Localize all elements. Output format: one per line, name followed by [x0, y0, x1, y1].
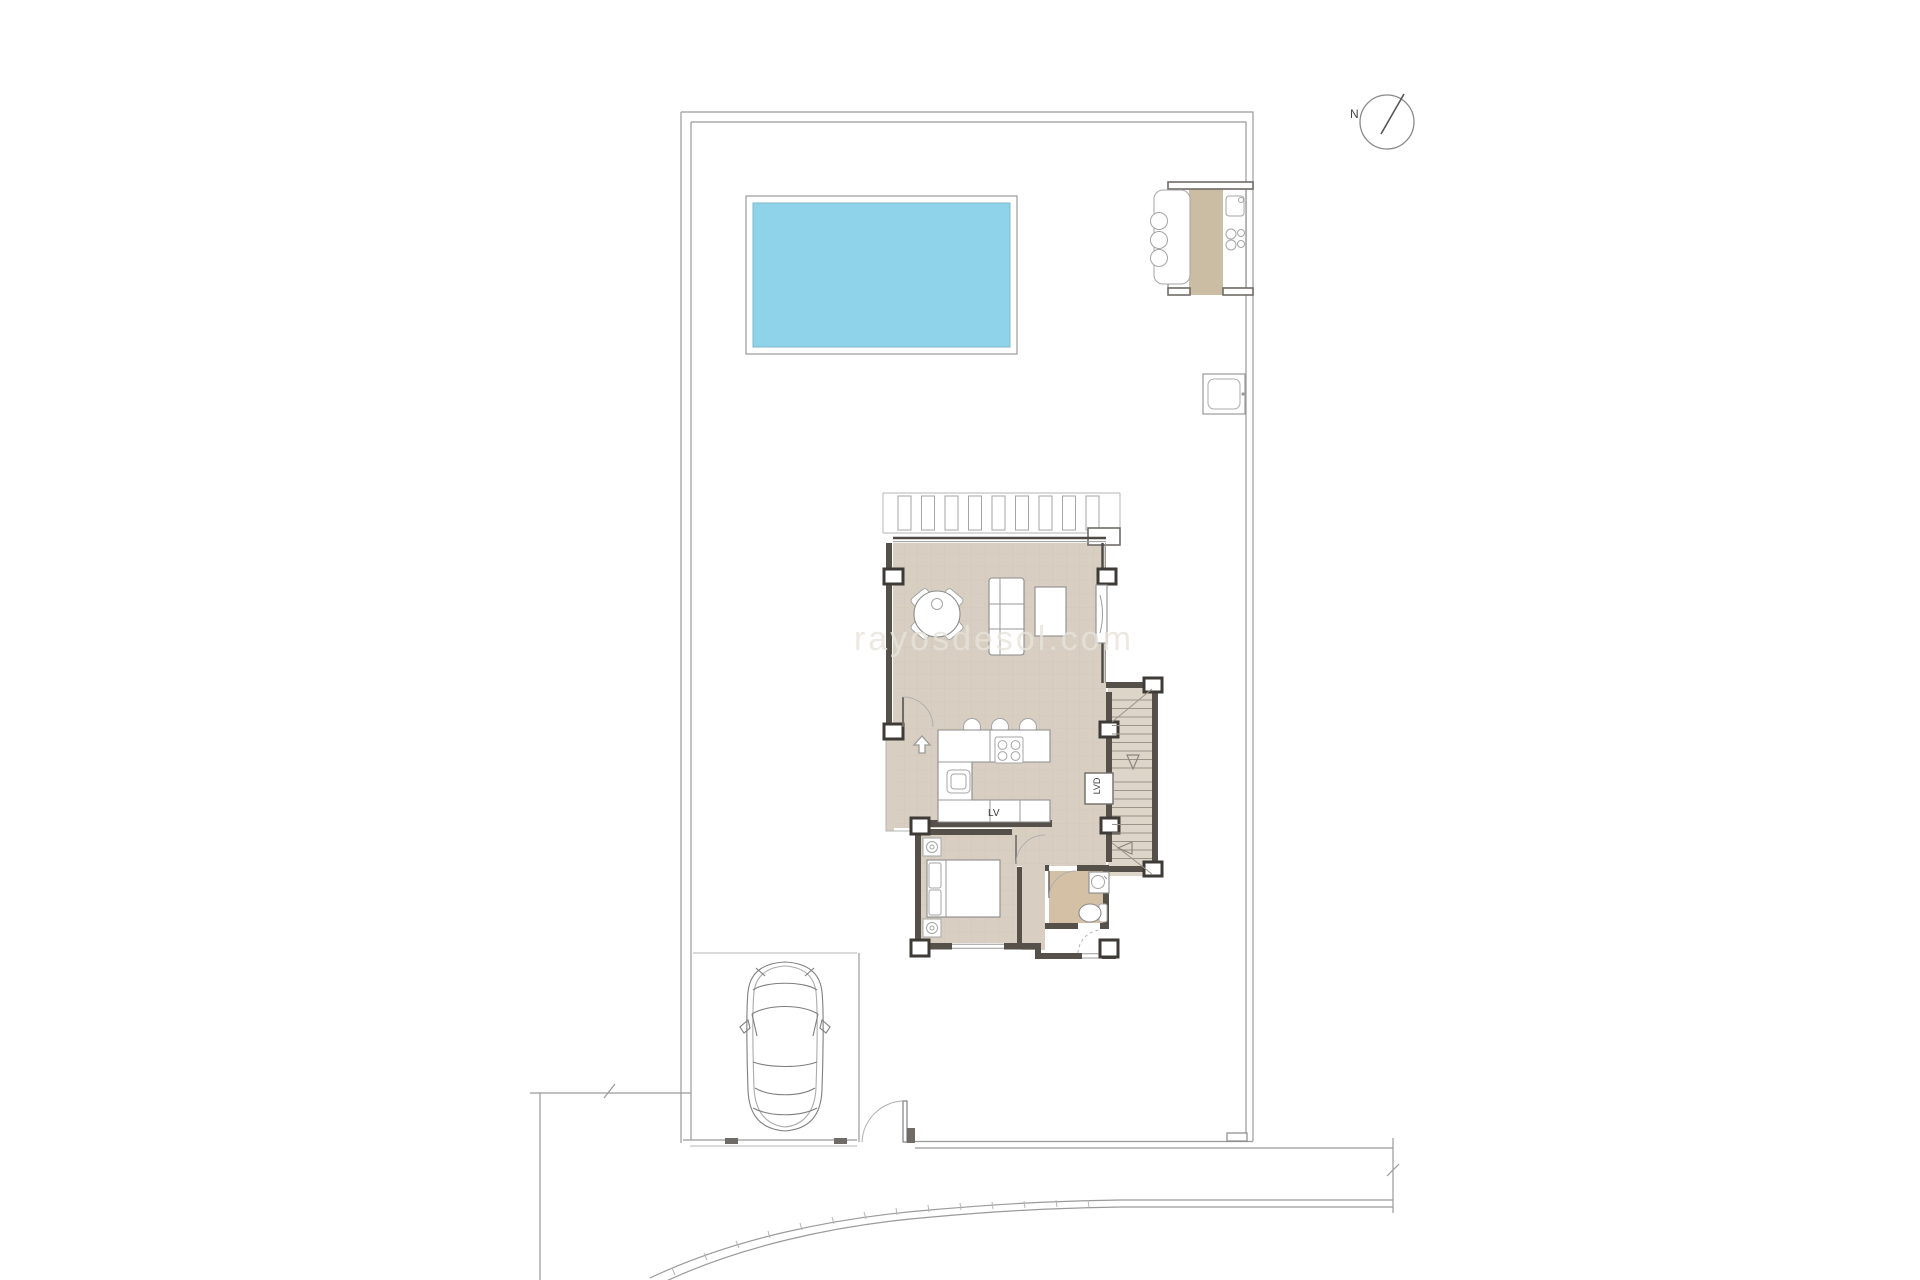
pergola-slats — [898, 496, 1099, 530]
car-mirror-right — [820, 1020, 830, 1033]
break-symbol — [604, 1084, 615, 1098]
toilet — [1079, 904, 1107, 922]
threshold-mark — [725, 1138, 738, 1144]
table-centerpiece — [932, 599, 943, 610]
bbq-tap-icon — [1239, 198, 1244, 203]
pillow — [929, 863, 941, 888]
car-mirror-left — [740, 1020, 750, 1033]
laundry-label: LVD — [1092, 777, 1102, 794]
stool — [1151, 213, 1168, 230]
gate-post — [907, 1128, 915, 1143]
bbq-bottom-wall-right — [1223, 288, 1253, 295]
threshold-mark — [834, 1138, 847, 1144]
bed — [927, 860, 1000, 917]
floor-plan-drawing: N — [0, 0, 1920, 1280]
watermark: rayosdesol.com — [854, 620, 1134, 658]
cooktop — [995, 737, 1023, 763]
car — [740, 962, 830, 1131]
washbasin — [1089, 872, 1109, 893]
bedroom-window — [952, 944, 1004, 948]
laundry-closet: LVD — [1085, 773, 1113, 804]
stool — [1151, 232, 1168, 249]
outdoor-kitchen-bbq — [1151, 182, 1254, 295]
north-label: N — [1350, 107, 1359, 121]
bbq-walkway — [1189, 189, 1223, 295]
nightstand — [923, 838, 941, 856]
pedestrian-gate — [862, 1101, 915, 1143]
north-needle-icon — [1381, 94, 1404, 134]
equipment-box — [1203, 374, 1245, 414]
car-hood-line — [753, 983, 817, 990]
floor-plan-page: N — [0, 0, 1920, 1280]
car-trunk-line — [753, 1108, 817, 1115]
car-roof-line — [753, 1062, 817, 1067]
bbq-top-wall — [1168, 182, 1253, 189]
nightstand — [923, 919, 941, 937]
dishwasher-label: LV — [988, 808, 1000, 819]
carport — [683, 953, 859, 1146]
car-rear-window — [755, 1088, 815, 1095]
pool-water — [753, 203, 1010, 347]
kitchen-sink — [947, 770, 970, 793]
porch-door-swing-dashed — [1078, 930, 1101, 953]
stool — [1151, 250, 1168, 267]
fence-lines — [530, 1084, 691, 1280]
pillow — [929, 890, 941, 915]
swimming-pool — [746, 196, 1017, 354]
curb-stones — [672, 1200, 1089, 1275]
bbq-bottom-wall-left — [1168, 288, 1190, 295]
pergola-lintel — [1088, 528, 1120, 545]
north-indicator: N — [1350, 94, 1414, 149]
gate-leaf — [903, 1101, 907, 1142]
boundary-notch — [1227, 1133, 1247, 1141]
car-windshield — [752, 1007, 818, 1015]
street-curb — [650, 1200, 1393, 1280]
